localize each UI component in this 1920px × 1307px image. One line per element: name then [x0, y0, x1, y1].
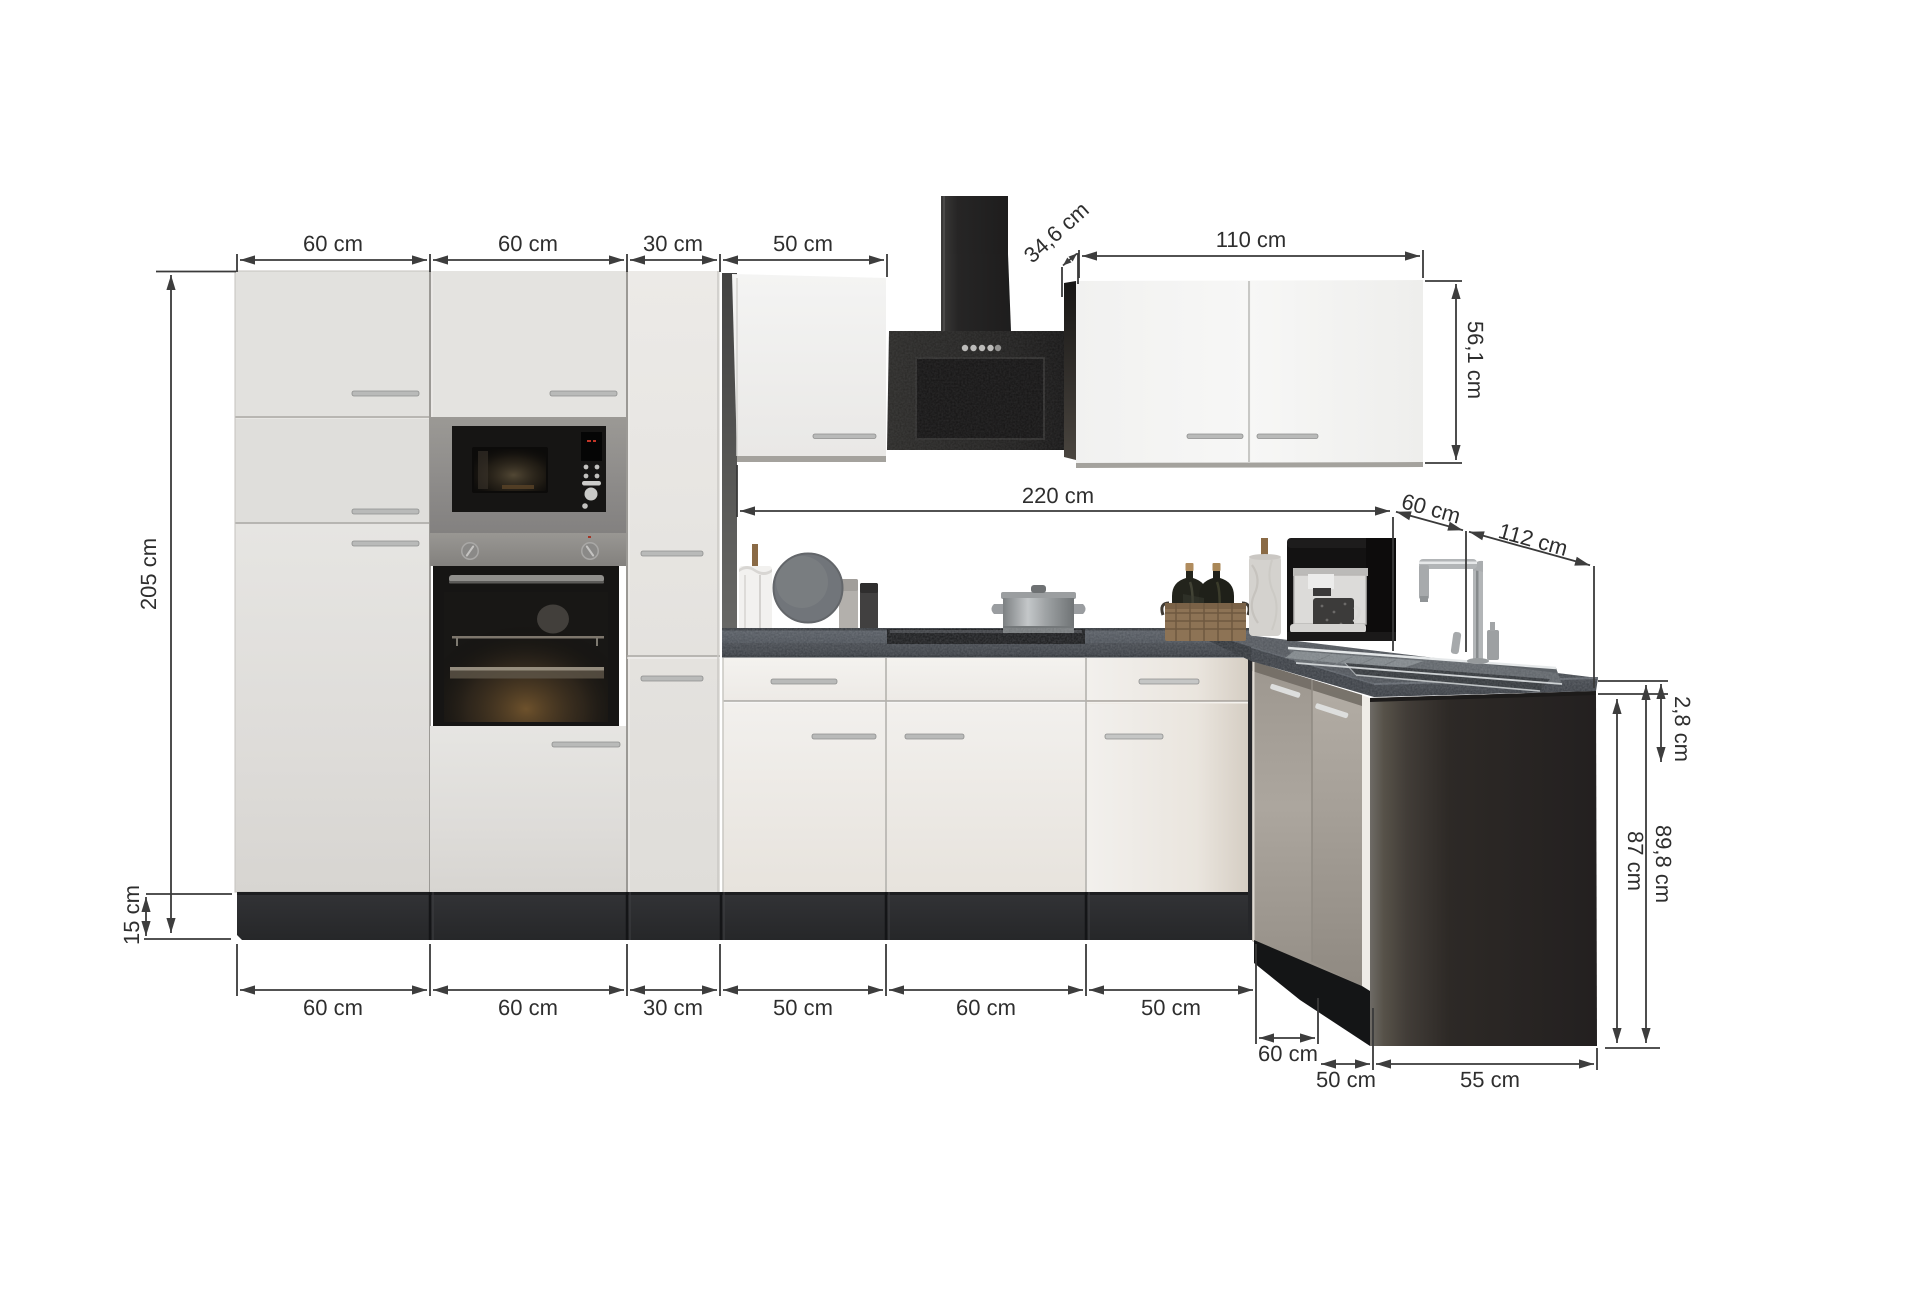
svg-text:2,8 cm: 2,8 cm — [1670, 696, 1695, 762]
svg-text:50 cm: 50 cm — [773, 995, 833, 1020]
svg-text:60 cm: 60 cm — [498, 231, 558, 256]
svg-text:60 cm: 60 cm — [303, 995, 363, 1020]
svg-text:60 cm: 60 cm — [303, 231, 363, 256]
svg-text:60 cm: 60 cm — [498, 995, 558, 1020]
svg-text:50 cm: 50 cm — [1141, 995, 1201, 1020]
svg-text:220 cm: 220 cm — [1022, 483, 1094, 508]
svg-text:87 cm: 87 cm — [1623, 831, 1648, 891]
svg-text:30 cm: 30 cm — [643, 995, 703, 1020]
svg-text:205 cm: 205 cm — [136, 538, 161, 610]
svg-text:60 cm: 60 cm — [1258, 1041, 1318, 1066]
svg-text:50 cm: 50 cm — [1316, 1067, 1376, 1092]
svg-text:60 cm: 60 cm — [956, 995, 1016, 1020]
svg-text:50 cm: 50 cm — [773, 231, 833, 256]
svg-text:15 cm: 15 cm — [119, 885, 144, 945]
svg-text:89,8 cm: 89,8 cm — [1651, 825, 1676, 903]
svg-text:55 cm: 55 cm — [1460, 1067, 1520, 1092]
svg-text:110 cm: 110 cm — [1216, 227, 1287, 252]
svg-text:30 cm: 30 cm — [643, 231, 703, 256]
svg-text:56,1 cm: 56,1 cm — [1463, 321, 1488, 399]
